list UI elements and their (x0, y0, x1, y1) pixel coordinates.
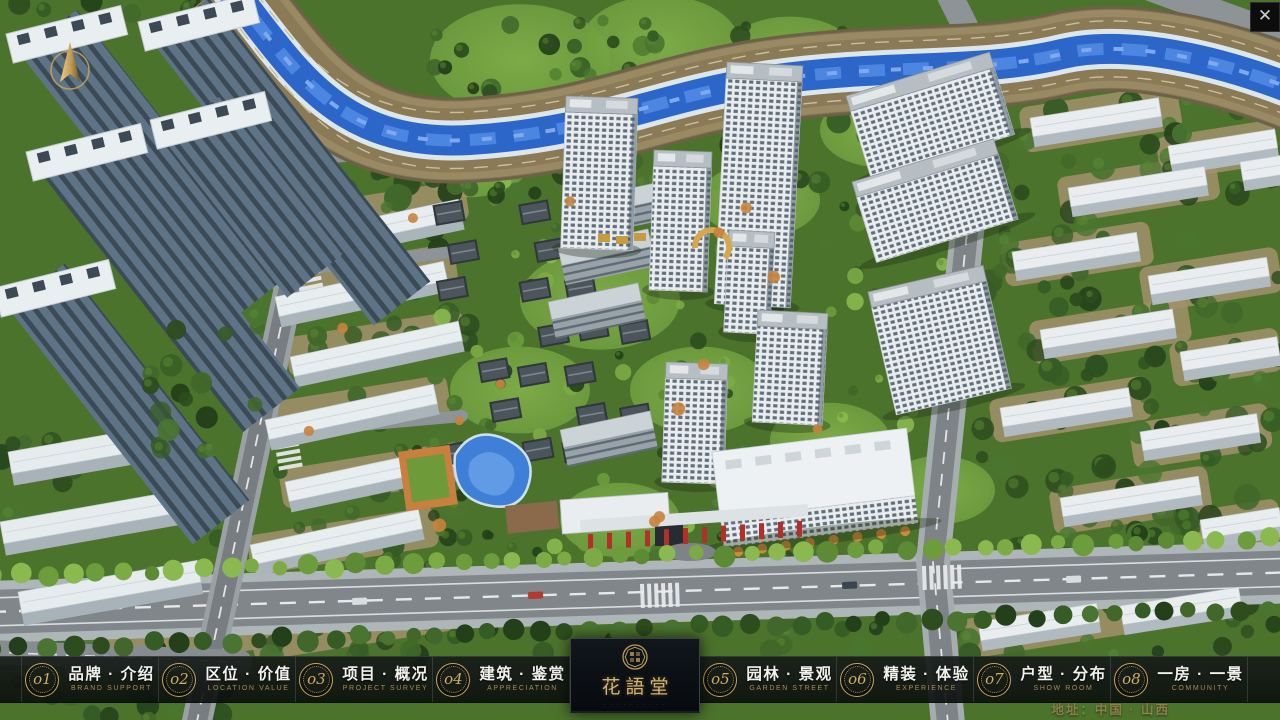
nav-label-en: COMMUNITY (1172, 685, 1230, 692)
nav-number-medallion: o4 (436, 663, 470, 697)
nav-item-labels: 一房 · 一景 COMMUNITY (1157, 667, 1243, 693)
nav-label-zh: 一房 · 一景 (1157, 667, 1243, 683)
residential-tower (649, 150, 712, 292)
nav-item-labels: 品牌 · 介绍 BRAND SUPPORT (68, 667, 154, 693)
nav-label-en: SHOW ROOM (1034, 685, 1094, 692)
nav-item-3[interactable]: o3 项目 · 概况 PROJECT SURVEY (296, 657, 433, 702)
bottom-navbar: o1 品牌 · 介绍 BRAND SUPPORT o2 区位 · 价值 LOCA… (0, 656, 1280, 703)
nav-right-group: o5 园林 · 景观 GARDEN STREET o6 精装 · 体验 EXPE… (700, 657, 1248, 702)
project-logo-panel[interactable]: 花語堂 · · · · · · · · · · (570, 638, 700, 713)
project-name: 花語堂 (596, 672, 673, 699)
nav-item-2[interactable]: o2 区位 · 价值 LOCATION VALUE (159, 657, 296, 702)
nav-item-1[interactable]: o1 品牌 · 介绍 BRAND SUPPORT (22, 657, 159, 702)
nav-item-6[interactable]: o6 精装 · 体验 EXPERIENCE (837, 657, 974, 702)
nav-item-labels: 建筑 · 鉴赏 APPRECIATION (479, 667, 565, 693)
nav-label-zh: 精装 · 体验 (883, 667, 969, 683)
nav-number-medallion: o5 (703, 663, 737, 697)
nav-number-medallion: o7 (977, 663, 1011, 697)
nav-label-zh: 户型 · 分布 (1020, 667, 1106, 683)
nav-label-en: EXPERIENCE (896, 685, 957, 692)
nav-item-labels: 精装 · 体验 EXPERIENCE (883, 667, 969, 693)
nav-label-zh: 品牌 · 介绍 (68, 667, 154, 683)
residential-tower (752, 310, 828, 426)
project-address: 地址：中国 · 山西 (1051, 699, 1170, 718)
project-tagline: · · · · · · · · · · (604, 702, 665, 707)
nav-number-medallion: o1 (25, 663, 59, 697)
nav-label-zh: 项目 · 概况 (342, 667, 428, 683)
nav-spacer (0, 657, 22, 702)
nav-label-en: PROJECT SURVEY (343, 685, 429, 692)
nav-item-labels: 户型 · 分布 SHOW ROOM (1020, 667, 1106, 693)
presentation-window: ✕ o1 品牌 · 介绍 BRAND SUPPORT o2 区位 · 价值 LO… (0, 0, 1280, 720)
nav-spacer (1248, 657, 1280, 702)
residential-tower (561, 96, 638, 250)
compass-icon (44, 36, 96, 100)
nav-label-en: APPRECIATION (487, 685, 558, 692)
clubhouse (398, 445, 458, 512)
nav-label-zh: 区位 · 价值 (205, 667, 291, 683)
nav-item-4[interactable]: o4 建筑 · 鉴赏 APPRECIATION (433, 657, 570, 702)
nav-item-labels: 园林 · 景观 GARDEN STREET (746, 667, 832, 693)
nav-item-7[interactable]: o7 户型 · 分布 SHOW ROOM (974, 657, 1111, 702)
close-icon[interactable]: ✕ (1250, 2, 1280, 32)
seal-icon (622, 644, 648, 670)
nav-item-labels: 项目 · 概况 PROJECT SURVEY (342, 667, 428, 693)
nav-left-group: o1 品牌 · 介绍 BRAND SUPPORT o2 区位 · 价值 LOCA… (22, 657, 570, 702)
masterplan-map[interactable] (0, 0, 1280, 720)
nav-item-labels: 区位 · 价值 LOCATION VALUE (205, 667, 291, 693)
nav-item-8[interactable]: o8 一房 · 一景 COMMUNITY (1111, 657, 1248, 702)
nav-number-medallion: o6 (840, 663, 874, 697)
nav-label-en: LOCATION VALUE (207, 685, 289, 692)
nav-label-zh: 建筑 · 鉴赏 (479, 667, 565, 683)
nav-number-medallion: o2 (162, 663, 196, 697)
nav-number-medallion: o3 (299, 663, 333, 697)
nav-label-zh: 园林 · 景观 (746, 667, 832, 683)
nav-label-en: GARDEN STREET (749, 685, 829, 692)
nav-label-en: BRAND SUPPORT (71, 685, 152, 692)
nav-number-medallion: o8 (1114, 663, 1148, 697)
nav-item-5[interactable]: o5 园林 · 景观 GARDEN STREET (700, 657, 837, 702)
